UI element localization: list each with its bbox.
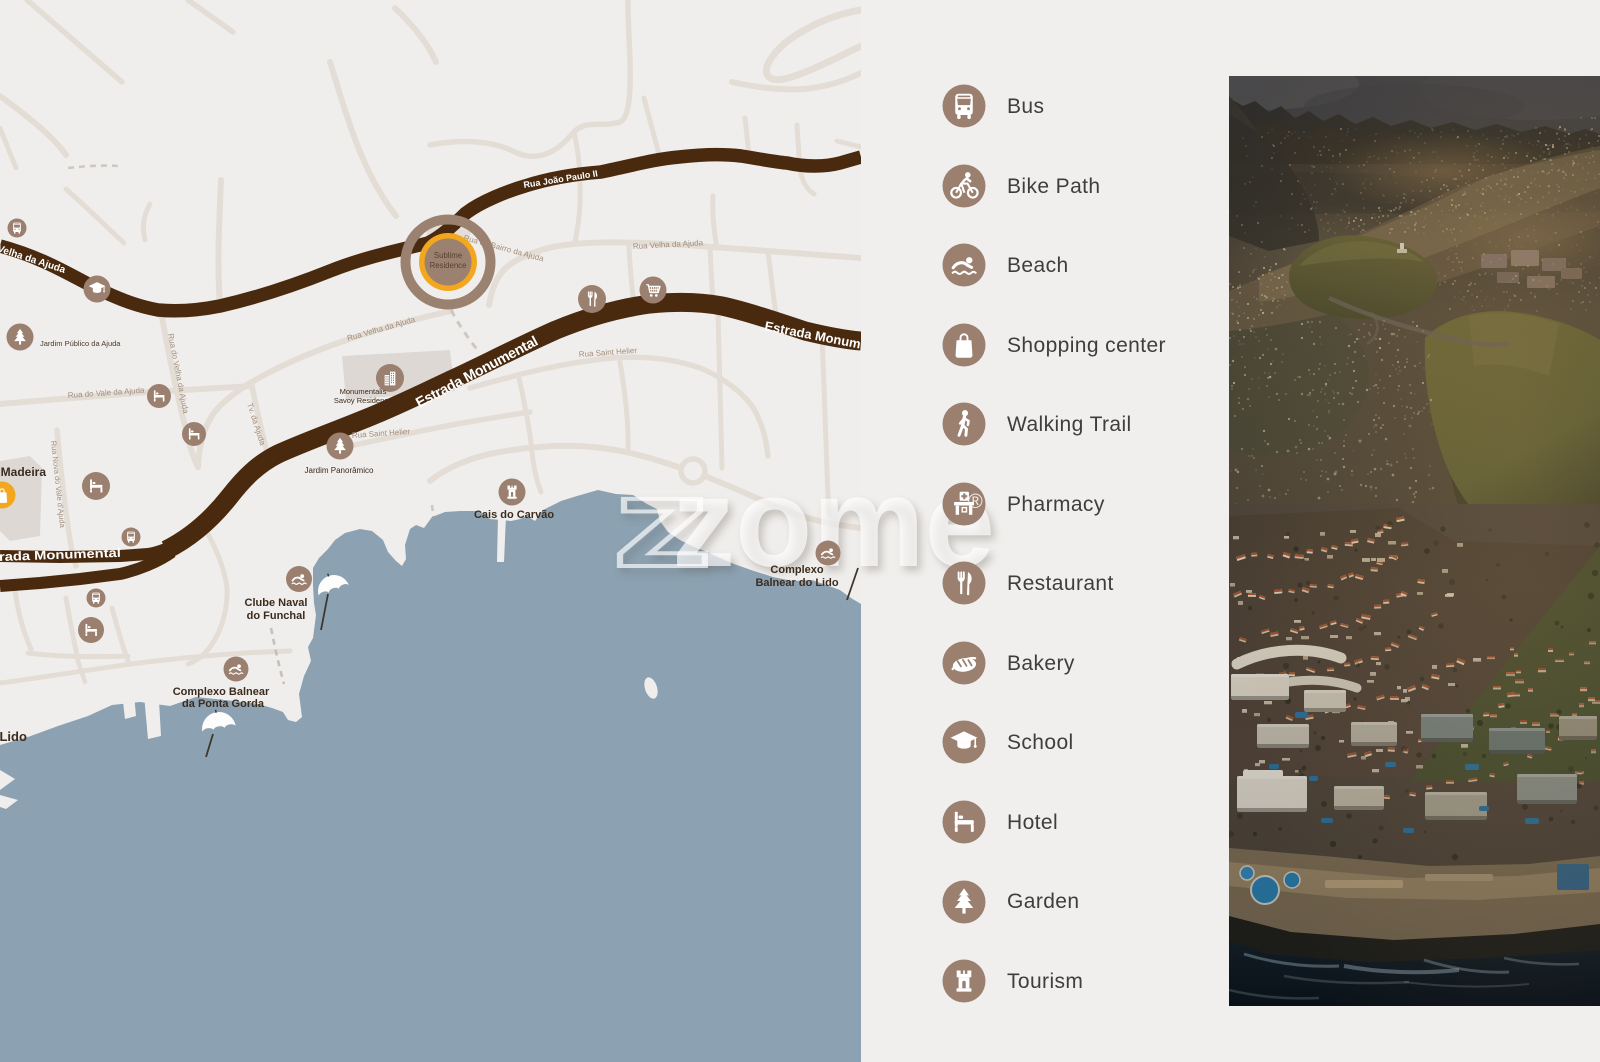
svg-text:Pharmacy: Pharmacy bbox=[1007, 493, 1105, 516]
svg-text:Clube Naval: Clube Naval bbox=[245, 597, 308, 609]
svg-text:Beach: Beach bbox=[1007, 254, 1069, 277]
svg-text:Balnear do Lido: Balnear do Lido bbox=[755, 577, 838, 589]
svg-text:Sublime: Sublime bbox=[434, 251, 462, 260]
svg-text:Fórum Madeira: Fórum Madeira bbox=[0, 465, 46, 479]
svg-text:Monumentalis: Monumentalis bbox=[340, 387, 387, 396]
svg-text:Complexo: Complexo bbox=[770, 564, 823, 576]
svg-text:Garden: Garden bbox=[1007, 890, 1079, 913]
svg-text:Bus: Bus bbox=[1007, 95, 1044, 118]
svg-text:do Funchal: do Funchal bbox=[247, 610, 306, 622]
svg-text:Tourism: Tourism bbox=[1007, 970, 1083, 993]
svg-text:Bike Path: Bike Path bbox=[1007, 175, 1101, 198]
svg-text:Complexo Balnear: Complexo Balnear bbox=[173, 686, 270, 698]
svg-text:School: School bbox=[1007, 731, 1074, 754]
svg-text:da Ponta Gorda: da Ponta Gorda bbox=[182, 698, 265, 710]
svg-text:Savoy Residence: Savoy Residence bbox=[334, 396, 392, 405]
svg-text:do Lido: do Lido bbox=[0, 729, 27, 744]
svg-text:Jardim Público da Ajuda: Jardim Público da Ajuda bbox=[40, 339, 121, 348]
svg-text:Shopping center: Shopping center bbox=[1007, 334, 1166, 357]
svg-text:Jardim Panorâmico: Jardim Panorâmico bbox=[305, 466, 374, 475]
svg-text:Residence: Residence bbox=[430, 261, 467, 270]
svg-text:Hotel: Hotel bbox=[1007, 811, 1058, 834]
svg-text:Walking Trail: Walking Trail bbox=[1007, 413, 1132, 436]
svg-text:Cais do Carvão: Cais do Carvão bbox=[474, 509, 554, 521]
svg-text:Restaurant: Restaurant bbox=[1007, 572, 1114, 595]
svg-text:Bakery: Bakery bbox=[1007, 652, 1075, 675]
